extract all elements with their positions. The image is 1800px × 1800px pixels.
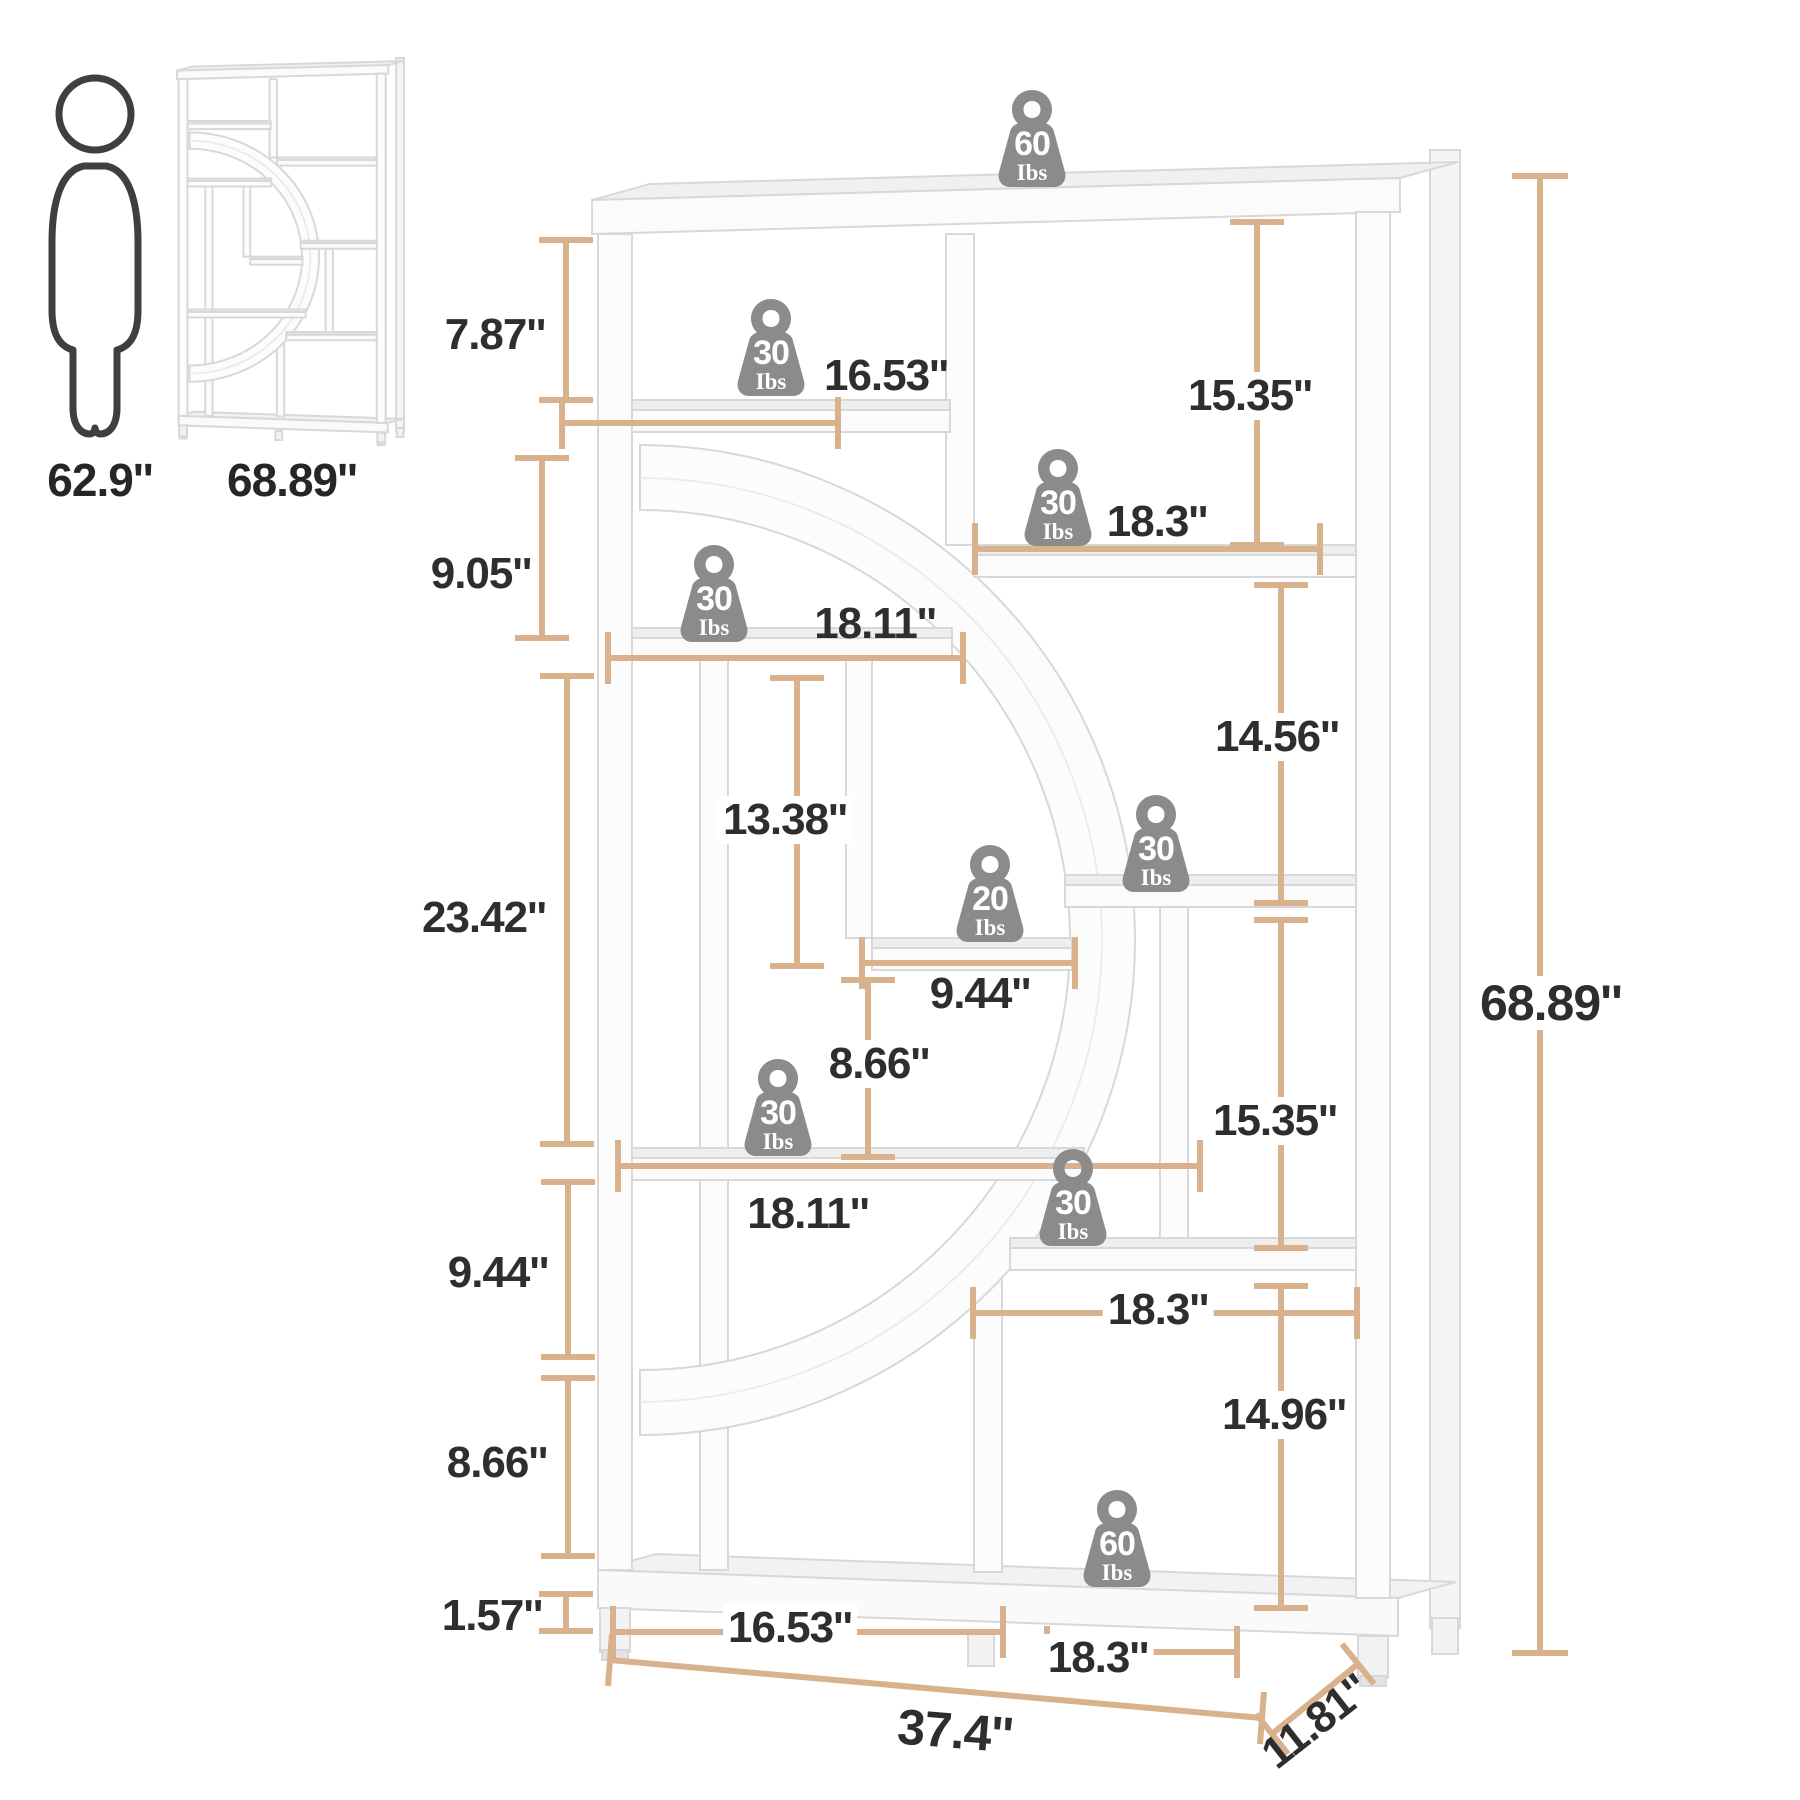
weight-value: 30 bbox=[1006, 486, 1110, 520]
dim-label-right-gap-top: 15.35'' bbox=[1183, 372, 1317, 420]
dim-label-right-gap3: 15.35'' bbox=[1208, 1097, 1342, 1145]
weight-value: 30 bbox=[662, 582, 766, 616]
dim-label-mid-gap2: 8.66'' bbox=[824, 1040, 935, 1088]
dim-label-small-shelf-width: 9.44'' bbox=[925, 970, 1036, 1018]
weight-unit: Ibs bbox=[980, 161, 1084, 184]
weight-unit: Ibs bbox=[719, 370, 823, 393]
weight-badge-30lbs-lower-right: 30 Ibs bbox=[1021, 1149, 1125, 1249]
dim-label-shelf-top-width: 16.53'' bbox=[819, 352, 953, 400]
dim-label-right-gap2: 14.56'' bbox=[1210, 713, 1344, 761]
dim-label-base-height: 1.57'' bbox=[437, 1592, 548, 1640]
weight-unit: Ibs bbox=[726, 1130, 830, 1153]
weight-badge-30lbs-upper-left: 30 Ibs bbox=[719, 299, 823, 399]
weight-value: 30 bbox=[1021, 1186, 1125, 1220]
dim-label-second-gap: 9.05'' bbox=[426, 550, 537, 598]
person-silhouette-icon bbox=[52, 78, 138, 434]
dim-label-left-lower-gap2: 8.66'' bbox=[442, 1439, 553, 1487]
mini-bookcase-height-label: 68.89'' bbox=[227, 457, 357, 503]
weight-badge-60lbs-bottom: 60 Ibs bbox=[1065, 1490, 1169, 1590]
dim-label-shelf-lower-width: 18.11'' bbox=[742, 1190, 874, 1238]
dim-label-top-gap: 7.87'' bbox=[440, 311, 551, 359]
weight-unit: Ibs bbox=[1065, 1561, 1169, 1584]
dim-label-bottom-right-width: 18.3'' bbox=[1043, 1634, 1154, 1682]
weight-badge-30lbs-lower-left: 30 Ibs bbox=[726, 1059, 830, 1159]
dim-label-total-height: 68.89'' bbox=[1475, 976, 1627, 1030]
dim-label-shelf-lowerright-width: 18.3'' bbox=[1103, 1286, 1214, 1334]
mini-bookshelf-icon bbox=[177, 58, 404, 445]
person-height-label: 62.9'' bbox=[47, 457, 152, 503]
dim-label-right-gap4: 14.96'' bbox=[1217, 1391, 1351, 1439]
weight-unit: Ibs bbox=[938, 916, 1042, 939]
weight-unit: Ibs bbox=[662, 616, 766, 639]
dim-label-shelf-right-width: 18.3'' bbox=[1102, 498, 1213, 546]
weight-unit: Ibs bbox=[1006, 520, 1110, 543]
weight-value: 30 bbox=[726, 1096, 830, 1130]
weight-unit: Ibs bbox=[1021, 1220, 1125, 1243]
dim-label-left-tall-gap: 23.42'' bbox=[417, 894, 551, 942]
dim-label-bottom-left-width: 16.53'' bbox=[723, 1604, 857, 1652]
weight-value: 30 bbox=[719, 336, 823, 370]
weight-badge-60lbs-top: 60 Ibs bbox=[980, 90, 1084, 190]
weight-value: 60 bbox=[980, 127, 1084, 161]
dim-label-total-width: 37.4'' bbox=[891, 1699, 1020, 1763]
weight-badge-30lbs-upper-right: 30 Ibs bbox=[1006, 449, 1110, 549]
weight-badge-30lbs-mid-right: 30 Ibs bbox=[1104, 795, 1208, 895]
weight-badge-20lbs-small-shelf: 20 Ibs bbox=[938, 845, 1042, 945]
dim-label-shelf-mid-width: 18.11'' bbox=[809, 600, 941, 648]
weight-value: 20 bbox=[938, 882, 1042, 916]
dim-label-left-lower-gap: 9.44'' bbox=[443, 1249, 554, 1297]
product-dimension-diagram: 62.9'' 68.89'' 7.87'' 9.05'' 23.42'' 9.4… bbox=[0, 0, 1800, 1800]
weight-badge-30lbs-mid-left: 30 Ibs bbox=[662, 545, 766, 645]
bookshelf-diagram bbox=[0, 0, 1800, 1800]
weight-value: 60 bbox=[1065, 1527, 1169, 1561]
weight-value: 30 bbox=[1104, 832, 1208, 866]
weight-unit: Ibs bbox=[1104, 866, 1208, 889]
dim-label-mid-gap: 13.38'' bbox=[718, 796, 852, 844]
